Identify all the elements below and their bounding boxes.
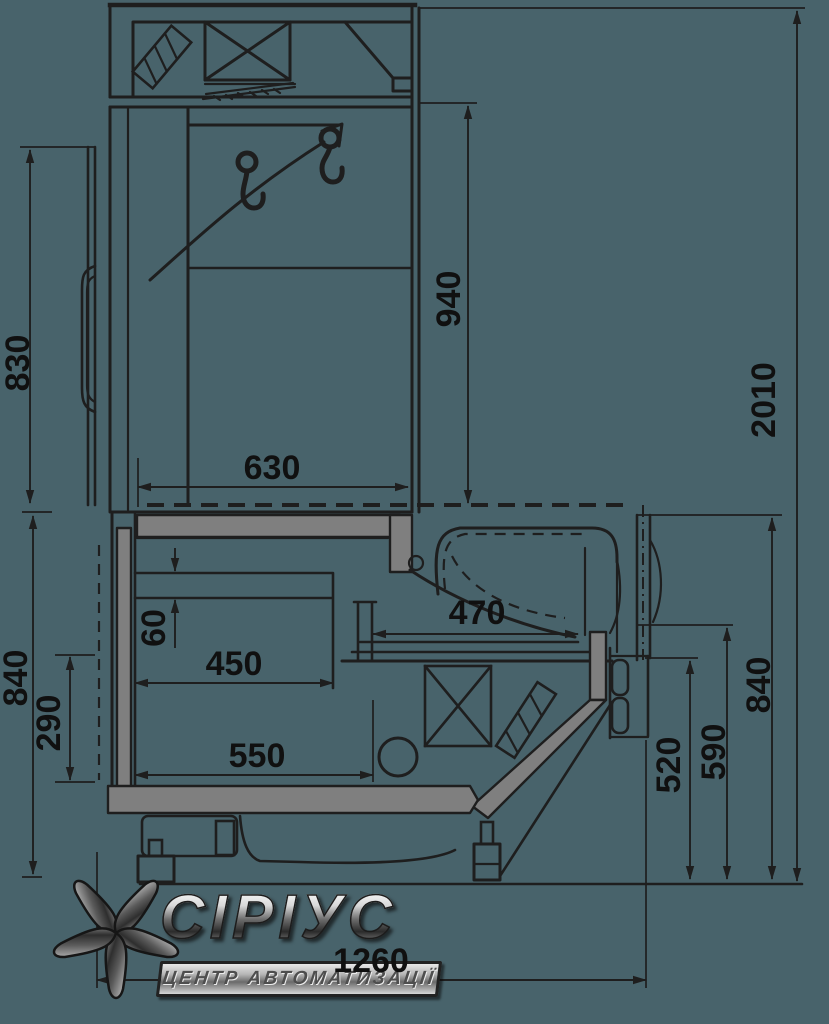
dim-630: 630	[244, 451, 301, 485]
dim-590: 590	[697, 724, 731, 781]
dim-520: 520	[652, 737, 686, 794]
dim-1260: 1260	[333, 944, 409, 978]
dim-840-left: 840	[0, 650, 33, 707]
dim-450: 450	[206, 647, 263, 681]
sirius-logo: СІРІУС ЦЕНТР АВТОМАТИЗАЦІЇ	[48, 851, 478, 1016]
dim-2010: 2010	[747, 362, 781, 438]
dim-940: 940	[432, 271, 466, 328]
dim-550: 550	[229, 739, 286, 773]
condenser-fan-box	[133, 22, 295, 100]
meat-hooks	[150, 124, 342, 280]
dim-840-right: 840	[742, 657, 776, 714]
dim-60: 60	[137, 609, 171, 647]
dim-830: 830	[1, 335, 35, 392]
dim-470: 470	[449, 596, 506, 630]
dim-290: 290	[32, 695, 66, 752]
drawing-canvas: 830 940 2010 630 470 60 450 290 840 550 …	[0, 0, 829, 1024]
brand-wordmark: СІРІУС	[160, 887, 397, 949]
